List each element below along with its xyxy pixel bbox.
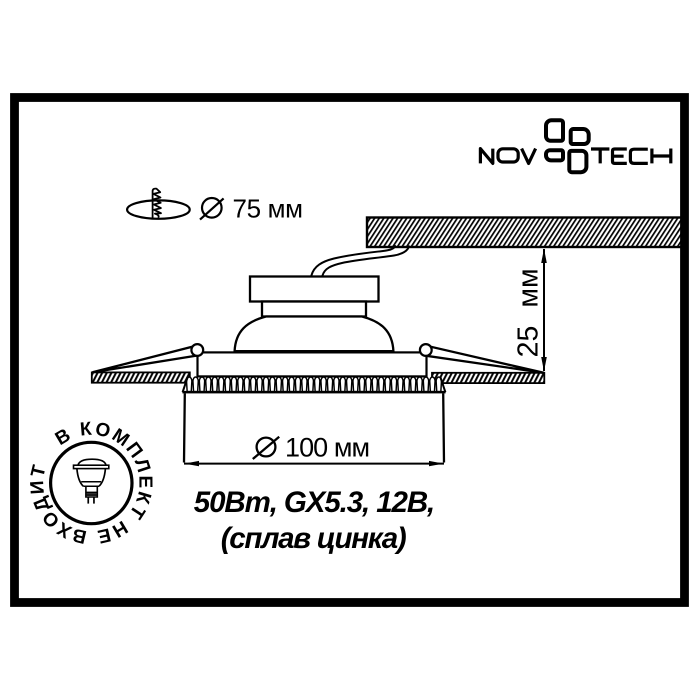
svg-text:75 мм: 75 мм bbox=[233, 194, 304, 224]
svg-text:мм: мм bbox=[513, 268, 545, 307]
svg-text:100 мм: 100 мм bbox=[285, 433, 370, 463]
svg-text:50Bm, GX5.3, 12B,: 50Bm, GX5.3, 12B, bbox=[194, 486, 436, 519]
svg-text:(сплав цинка): (сплав цинка) bbox=[221, 522, 407, 555]
svg-text:25: 25 bbox=[513, 326, 545, 358]
